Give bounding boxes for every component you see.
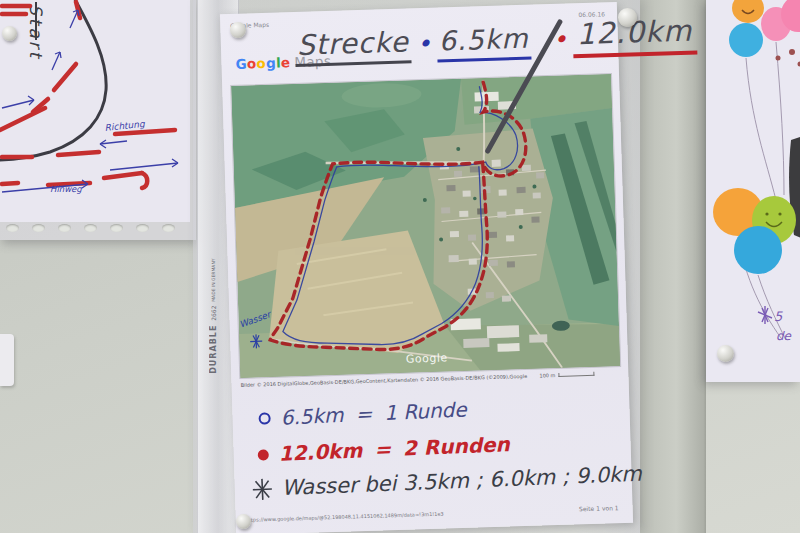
legend-distance: 6.5km [280,403,344,430]
print-footer: https://www.google.de/maps/@52.198048,11… [246,504,619,523]
right-balloon-sheet: 5 de [706,0,800,382]
legend-two-laps: 12.0km = 2 Runden [257,432,510,467]
footer-page-number: Seite 1 von 1 [579,504,619,512]
pushpin-right-sheet [717,345,734,362]
start-label: Start [26,4,46,61]
google-watermark: Google [406,351,448,365]
small-dots [776,49,800,67]
pushpin-left-sheet [2,26,17,41]
satellite-map: Wasser Google [231,74,620,378]
hinweg-label: Hinweg [50,184,82,194]
main-plastic-sleeve: DURABLE 2662 MADE IN GERMANY Google Maps… [193,0,640,533]
legend-label: 2 Runden [402,432,510,460]
wall-strip [640,0,706,533]
water-note-text: Wasser bei 3.5km ; 6.0km ; 9.0km [281,462,642,500]
title-distance-1: 6.5km [436,23,531,63]
pushpin-main-top-right [618,8,637,27]
balloon-blue-mid [734,226,782,274]
title-strecke: Strecke [294,25,411,67]
footer-url: https://www.google.de/maps/@52.198048,11… [246,511,444,523]
start-diagram: Start Richtung Hinweg [0,0,190,222]
balloon-orange-top [732,0,764,23]
map-printout-page: Google Maps 06.06.16 GoogleMaps Strecke … [220,2,633,533]
title-bullet-blue: • [416,32,431,63]
notice-board-photo: Start Richtung Hinweg [0,0,800,533]
map-scale-bar: 100 m [539,371,594,379]
legend-one-lap: 6.5km = 1 Runde [258,397,467,430]
map-scale-line [558,372,594,377]
partial-note-bottom: de [776,329,793,343]
legend-label: 1 Runde [384,397,467,425]
balloon-blue-top [729,23,763,57]
left-plastic-sleeve: Start Richtung Hinweg [0,0,196,240]
legend-distance: 12.0km [278,438,362,465]
left-drawing-sheet: Start Richtung Hinweg [0,0,190,222]
pushpin-main-top-left [230,22,246,38]
water-stations-note: Wasser bei 3.5km ; 6.0km ; 9.0km [250,462,642,502]
water-star-icon [250,477,274,501]
map-scale-label: 100 m [539,372,555,379]
balloon-drawing: 5 de [706,0,800,382]
legend-bullet-blue [258,412,271,425]
partial-note-top: 5 [774,309,783,324]
binder-brand-text: DURABLE 2662 MADE IN GERMANY [209,258,218,374]
legend-bullet-red [258,449,269,460]
pushpin-main-bottom [236,514,251,529]
paper-scrap [0,334,14,386]
sleeve-punch-holes [6,224,175,232]
